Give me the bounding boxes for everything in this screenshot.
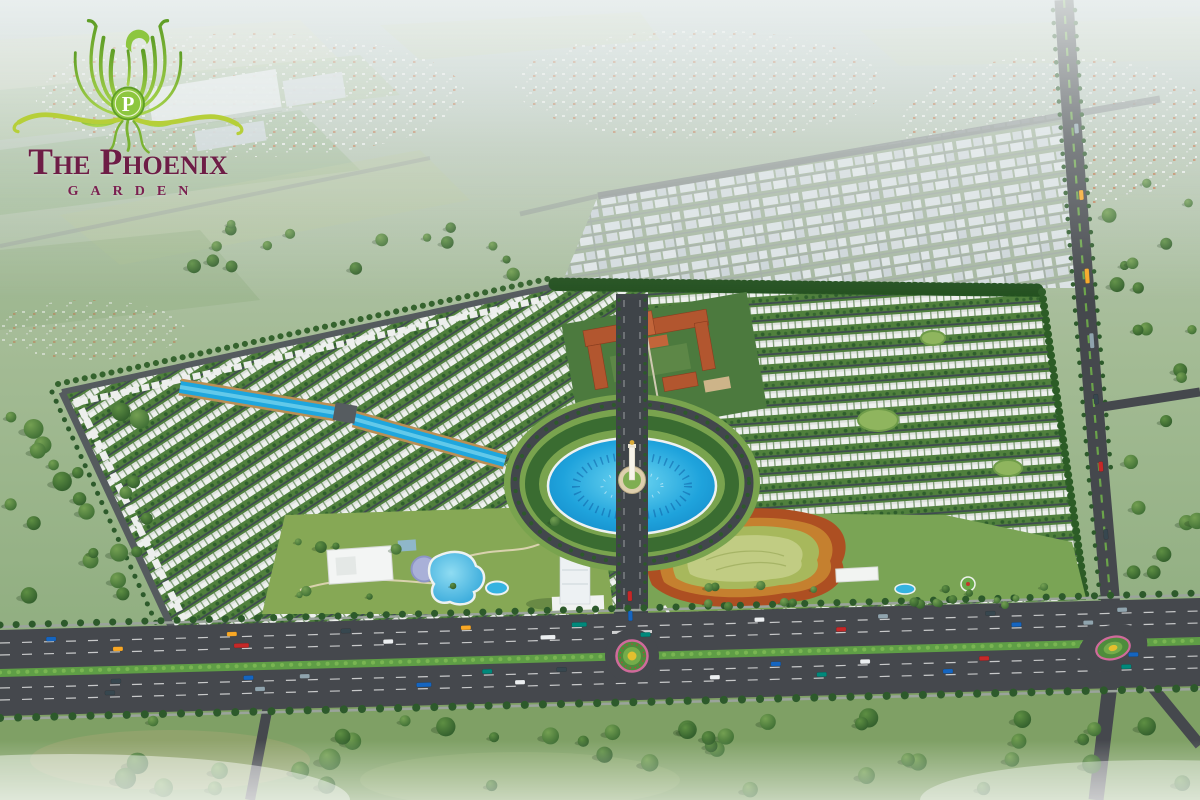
- tree: [27, 516, 41, 530]
- tree: [127, 475, 140, 488]
- car: [771, 662, 781, 667]
- car: [943, 669, 953, 674]
- car: [482, 669, 492, 674]
- car: [540, 635, 555, 640]
- car: [572, 622, 587, 627]
- tree: [1187, 325, 1196, 334]
- tree: [110, 544, 128, 562]
- tree: [790, 600, 796, 606]
- tree: [332, 542, 339, 549]
- park-pavilion-building: [836, 567, 879, 582]
- tree: [680, 723, 695, 738]
- tree: [1001, 601, 1009, 609]
- car: [1094, 394, 1099, 404]
- car: [416, 682, 431, 687]
- tree: [550, 516, 560, 526]
- car: [710, 675, 720, 680]
- tree: [1133, 325, 1144, 336]
- tree: [810, 586, 817, 593]
- car: [640, 632, 650, 637]
- sports-hall: [327, 546, 393, 584]
- car: [1089, 333, 1094, 348]
- tree: [73, 492, 86, 505]
- tree: [1138, 717, 1156, 735]
- park-pond: [895, 584, 915, 594]
- car: [515, 680, 525, 685]
- car: [243, 675, 253, 680]
- tree: [933, 599, 941, 607]
- tree: [110, 572, 126, 588]
- monument-column: [629, 447, 635, 480]
- tree: [436, 717, 455, 736]
- tree: [760, 714, 776, 730]
- car: [1098, 461, 1103, 471]
- tree: [909, 597, 918, 606]
- tree: [21, 587, 37, 603]
- car: [836, 627, 846, 632]
- tree: [450, 583, 457, 590]
- tree: [296, 592, 302, 598]
- tree: [704, 583, 713, 592]
- flower-bed-center: [628, 652, 637, 661]
- car: [113, 647, 123, 652]
- tree: [30, 443, 46, 459]
- tree: [1127, 565, 1141, 579]
- canal-bridge: [333, 402, 358, 424]
- tree: [295, 538, 302, 545]
- logo-subtitle: GARDEN: [6, 184, 250, 200]
- car: [1083, 620, 1093, 625]
- car: [105, 690, 115, 695]
- tree: [72, 467, 83, 478]
- tree: [994, 597, 1000, 603]
- tree: [724, 602, 733, 611]
- car: [227, 632, 237, 637]
- car: [557, 667, 567, 672]
- tree: [1147, 565, 1161, 579]
- car: [985, 611, 995, 616]
- tree: [131, 546, 142, 557]
- logo-title: The Phoenix: [6, 144, 250, 181]
- car: [1103, 529, 1108, 539]
- tree: [78, 503, 94, 519]
- tree: [52, 472, 71, 491]
- car: [1117, 607, 1127, 612]
- swoosh-left: [19, 115, 122, 123]
- tree: [605, 724, 621, 740]
- car: [817, 672, 827, 677]
- tree: [942, 585, 950, 593]
- tree: [88, 548, 98, 558]
- tree: [141, 513, 153, 525]
- car: [461, 625, 471, 630]
- car: [1128, 652, 1138, 657]
- tree: [756, 581, 765, 590]
- tree: [148, 716, 159, 727]
- tree: [1040, 583, 1048, 591]
- tree: [366, 593, 372, 599]
- tree: [6, 412, 17, 423]
- car: [979, 656, 989, 661]
- tree: [399, 715, 410, 726]
- car: [628, 611, 633, 621]
- car: [1121, 664, 1131, 669]
- car: [383, 639, 393, 644]
- tree: [1014, 710, 1032, 728]
- tree: [116, 587, 129, 600]
- monument-gold-finial: [630, 440, 635, 445]
- phoenix-neck: [128, 51, 129, 85]
- car: [860, 659, 870, 664]
- tree: [966, 589, 973, 596]
- tree: [1160, 415, 1172, 427]
- tree: [315, 541, 327, 553]
- car: [878, 614, 888, 619]
- car: [754, 617, 764, 622]
- car: [341, 629, 351, 634]
- car: [46, 637, 56, 642]
- car: [1011, 622, 1021, 627]
- tree: [1156, 547, 1171, 562]
- swoosh-right: [136, 117, 238, 125]
- tree: [704, 599, 713, 608]
- tree: [1087, 722, 1101, 736]
- tree: [855, 717, 868, 730]
- phoenix-wings-icon: P: [8, 0, 248, 158]
- car: [255, 687, 265, 692]
- logo-monogram: P: [122, 94, 135, 116]
- phoenix-head: [126, 30, 150, 53]
- car: [300, 674, 310, 679]
- car: [627, 591, 632, 601]
- car: [111, 679, 121, 684]
- tree: [112, 403, 130, 421]
- tree: [1012, 595, 1019, 602]
- tree: [1176, 372, 1187, 383]
- tree: [119, 486, 132, 499]
- tree: [130, 409, 150, 429]
- tree: [24, 419, 44, 439]
- tree: [391, 544, 402, 555]
- kids-pool: [486, 582, 508, 595]
- car: [234, 643, 249, 648]
- phoenix-garden-aerial-view: P The Phoenix GARDEN: [0, 0, 1200, 800]
- tree: [5, 498, 17, 510]
- tree: [948, 595, 957, 604]
- tree: [1124, 455, 1138, 469]
- tree: [48, 460, 59, 471]
- tree: [1131, 501, 1145, 515]
- entrance-roundabout: [605, 629, 659, 683]
- project-logo: P The Phoenix GARDEN: [6, 0, 250, 200]
